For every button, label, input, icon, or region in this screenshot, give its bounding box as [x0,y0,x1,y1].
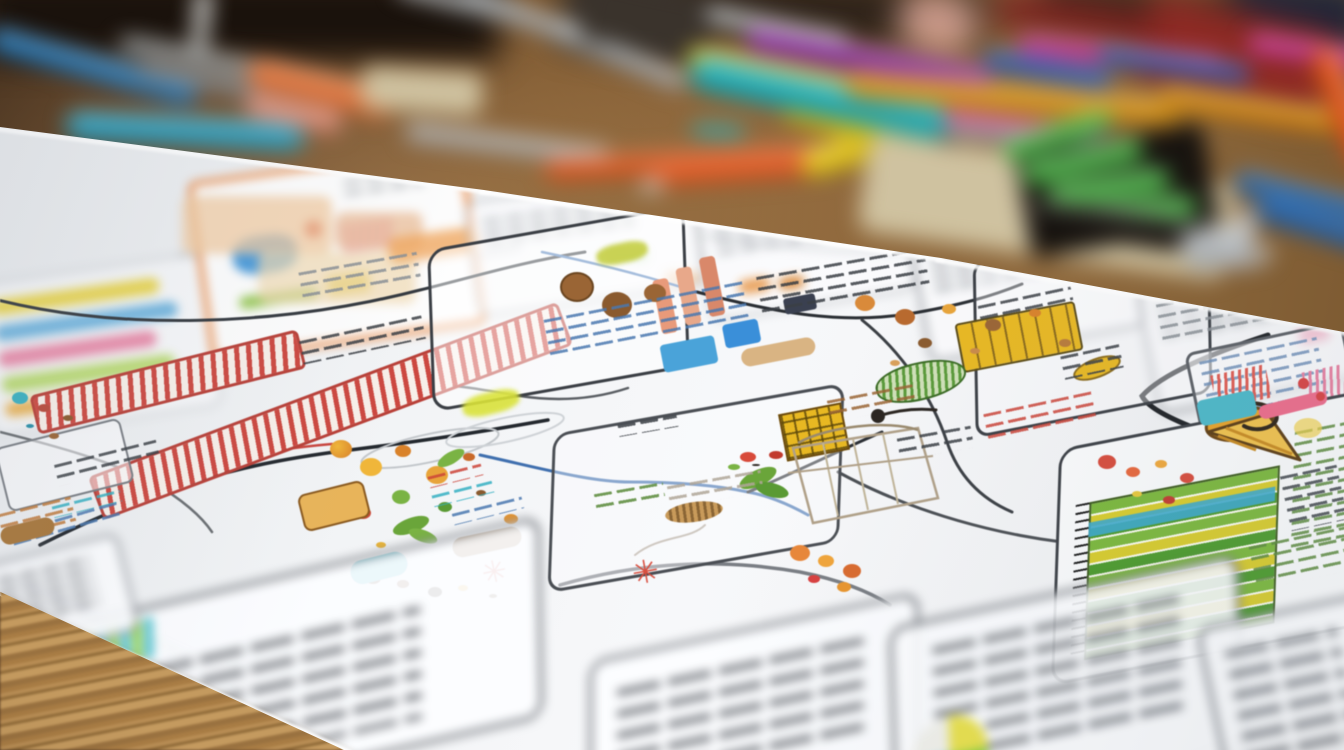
scribble-text-big [1224,628,1344,750]
white-pen [191,0,212,53]
wireframe-card-foreground [589,591,920,750]
beige-eraser-block [361,66,484,116]
pen-tip [1235,206,1253,221]
scribble-text-big [617,637,866,750]
teal-pen-tip [692,125,745,139]
pen-tip [639,179,664,192]
wireframe-card-foreground [888,553,1246,750]
scene-photo: ✳ ✳ [0,0,1344,750]
pen-tip [1255,244,1274,259]
